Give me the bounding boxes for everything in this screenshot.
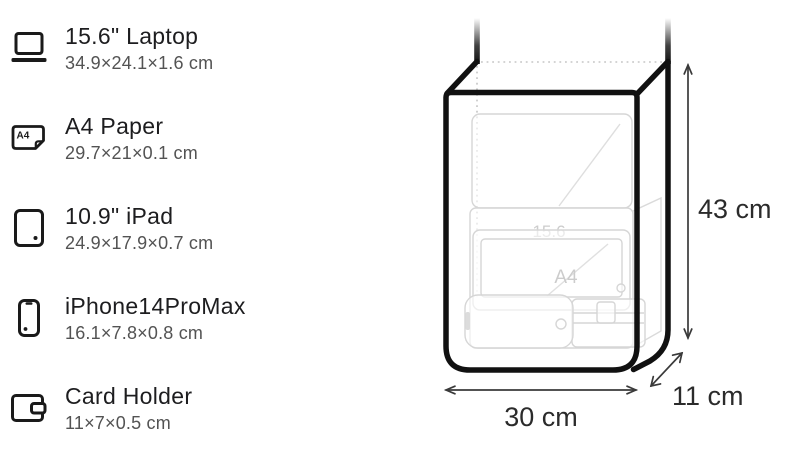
bag-straps — [474, 18, 671, 64]
list-item-ipad: 10.9" iPad 24.9×17.9×0.7 cm — [6, 183, 336, 273]
depth-label: 11 cm — [672, 381, 744, 411]
item-dimensions: 34.9×24.1×1.6 cm — [65, 53, 213, 74]
item-list: 15.6" Laptop 34.9×24.1×1.6 cm A4 A4 Pape… — [6, 3, 336, 453]
item-name: iPhone14ProMax — [65, 293, 246, 319]
item-dimensions: 29.7×21×0.1 cm — [65, 143, 198, 164]
height-arrow — [684, 65, 692, 338]
item-dimensions: 16.1×7.8×0.8 cm — [65, 323, 246, 344]
width-label: 30 cm — [504, 402, 578, 432]
bag-top-right-edge — [638, 62, 669, 94]
list-item-a4-paper: A4 A4 Paper 29.7×21×0.1 cm — [6, 93, 336, 183]
item-name: 10.9" iPad — [65, 203, 213, 229]
bag-contents-ghost: 15.6 A4 — [465, 114, 661, 348]
bag-3d-diagram: 15.6 A4 — [420, 0, 800, 455]
list-item-iphone: iPhone14ProMax 16.1×7.8×0.8 cm — [6, 273, 336, 363]
list-item-laptop: 15.6" Laptop 34.9×24.1×1.6 cm — [6, 3, 336, 93]
item-dimensions: 24.9×17.9×0.7 cm — [65, 233, 213, 254]
item-dimensions: 11×7×0.5 cm — [65, 413, 192, 434]
item-name: Card Holder — [65, 383, 192, 409]
strap-right — [665, 18, 671, 64]
a4-paper-icon: A4 — [6, 117, 52, 159]
ghost-laptop — [472, 114, 632, 208]
iphone-icon — [6, 297, 52, 339]
item-name: A4 Paper — [65, 113, 198, 139]
card-holder-icon — [6, 387, 52, 429]
ghost-iphone — [465, 295, 573, 348]
ipad-icon — [6, 207, 52, 249]
size-comparison-infographic: 15.6" Laptop 34.9×24.1×1.6 cm A4 A4 Pape… — [0, 0, 800, 455]
width-arrow — [446, 386, 636, 394]
height-label: 43 cm — [698, 194, 772, 224]
bag-top-left-edge — [447, 62, 477, 94]
laptop-icon — [6, 27, 52, 69]
item-name: 15.6" Laptop — [65, 23, 213, 49]
a4-icon-label: A4 — [17, 131, 30, 142]
list-item-card-holder: Card Holder 11×7×0.5 cm — [6, 363, 336, 453]
strap-left — [474, 18, 480, 64]
ghost-a4-label: A4 — [554, 267, 578, 288]
ghost-card-holder — [572, 299, 645, 347]
